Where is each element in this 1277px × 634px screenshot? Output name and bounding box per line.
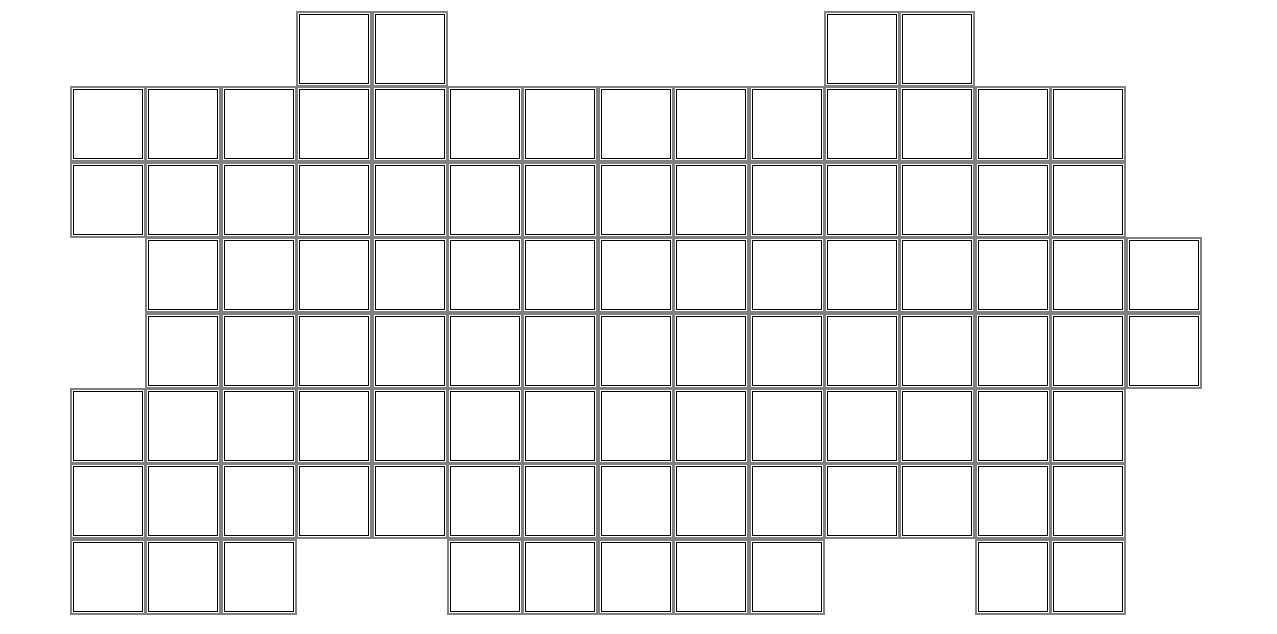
board-cell[interactable] xyxy=(525,542,595,612)
board-cell[interactable] xyxy=(676,316,746,386)
board-cell[interactable] xyxy=(752,316,822,386)
board-cell[interactable] xyxy=(299,391,369,461)
board-cell[interactable] xyxy=(978,240,1048,310)
board-cell[interactable] xyxy=(902,240,972,310)
board-cell[interactable] xyxy=(450,165,520,235)
board-cell[interactable] xyxy=(752,466,822,536)
board-cell[interactable] xyxy=(601,391,671,461)
board-cell[interactable] xyxy=(601,466,671,536)
board-cell[interactable] xyxy=(148,89,218,159)
board-cell[interactable] xyxy=(827,316,897,386)
board-cell[interactable] xyxy=(676,165,746,235)
board-cell[interactable] xyxy=(1053,391,1123,461)
board-cell[interactable] xyxy=(902,14,972,84)
board-cell[interactable] xyxy=(1053,542,1123,612)
board-cell[interactable] xyxy=(827,240,897,310)
board-cell[interactable] xyxy=(450,89,520,159)
board-cell[interactable] xyxy=(525,466,595,536)
board-cell[interactable] xyxy=(752,165,822,235)
board-cell[interactable] xyxy=(1129,316,1199,386)
board-cell[interactable] xyxy=(224,316,294,386)
board-cell[interactable] xyxy=(1053,316,1123,386)
board-cell[interactable] xyxy=(73,89,143,159)
board-cell[interactable] xyxy=(224,542,294,612)
board-cell[interactable] xyxy=(676,466,746,536)
board-cell[interactable] xyxy=(978,466,1048,536)
board-cell[interactable] xyxy=(299,466,369,536)
board-cell[interactable] xyxy=(73,466,143,536)
board-cell[interactable] xyxy=(148,165,218,235)
board-cell[interactable] xyxy=(148,391,218,461)
board-cell[interactable] xyxy=(902,466,972,536)
board-cell[interactable] xyxy=(601,240,671,310)
board-cell[interactable] xyxy=(978,89,1048,159)
board-cell[interactable] xyxy=(902,89,972,159)
board-cell[interactable] xyxy=(148,316,218,386)
board-cell[interactable] xyxy=(375,391,445,461)
board-cell[interactable] xyxy=(1053,89,1123,159)
board-cell[interactable] xyxy=(1053,240,1123,310)
board-cell[interactable] xyxy=(601,89,671,159)
board-cell[interactable] xyxy=(1053,466,1123,536)
board-cell[interactable] xyxy=(450,316,520,386)
board-cell[interactable] xyxy=(525,316,595,386)
board-cell[interactable] xyxy=(676,89,746,159)
board-cell[interactable] xyxy=(601,542,671,612)
board-cell[interactable] xyxy=(676,240,746,310)
board-cell[interactable] xyxy=(978,391,1048,461)
board-cell[interactable] xyxy=(676,391,746,461)
board-cell[interactable] xyxy=(450,542,520,612)
board-cell[interactable] xyxy=(224,391,294,461)
board-cell[interactable] xyxy=(676,542,746,612)
board-cell[interactable] xyxy=(1053,165,1123,235)
board-cell[interactable] xyxy=(978,316,1048,386)
board-cell[interactable] xyxy=(601,316,671,386)
board-cell[interactable] xyxy=(525,240,595,310)
board-cell[interactable] xyxy=(827,165,897,235)
board-cell[interactable] xyxy=(752,391,822,461)
board-cell[interactable] xyxy=(978,165,1048,235)
board-cell[interactable] xyxy=(299,89,369,159)
board-cell[interactable] xyxy=(375,316,445,386)
board-cell[interactable] xyxy=(148,240,218,310)
board-cell[interactable] xyxy=(299,316,369,386)
board-cell[interactable] xyxy=(375,14,445,84)
board-cell[interactable] xyxy=(450,240,520,310)
board-cell[interactable] xyxy=(902,165,972,235)
board-cell[interactable] xyxy=(224,165,294,235)
board-cell[interactable] xyxy=(902,391,972,461)
board-cell[interactable] xyxy=(73,391,143,461)
board-cell[interactable] xyxy=(375,89,445,159)
board-cell[interactable] xyxy=(299,14,369,84)
board-cell[interactable] xyxy=(73,542,143,612)
board-cell[interactable] xyxy=(525,89,595,159)
board-cell[interactable] xyxy=(525,165,595,235)
board-cell[interactable] xyxy=(1129,240,1199,310)
board-cell[interactable] xyxy=(148,466,218,536)
board-cell[interactable] xyxy=(450,466,520,536)
board-cell[interactable] xyxy=(752,89,822,159)
board-cell[interactable] xyxy=(375,466,445,536)
board-cell[interactable] xyxy=(148,542,218,612)
board-cell[interactable] xyxy=(752,240,822,310)
board-cell[interactable] xyxy=(827,14,897,84)
board-cell[interactable] xyxy=(73,165,143,235)
board-cell[interactable] xyxy=(224,89,294,159)
board-cell[interactable] xyxy=(299,240,369,310)
board-cell[interactable] xyxy=(827,391,897,461)
board-cell[interactable] xyxy=(601,165,671,235)
board-cell[interactable] xyxy=(525,391,595,461)
board-cell[interactable] xyxy=(375,165,445,235)
page: { "board": { "description": "empty irreg… xyxy=(0,0,1277,634)
board-cell[interactable] xyxy=(299,165,369,235)
board-cell[interactable] xyxy=(224,240,294,310)
board-cell[interactable] xyxy=(827,466,897,536)
board-cell[interactable] xyxy=(752,542,822,612)
board-cell[interactable] xyxy=(902,316,972,386)
board-cell[interactable] xyxy=(450,391,520,461)
board-cell[interactable] xyxy=(375,240,445,310)
board-cell[interactable] xyxy=(827,89,897,159)
board-cell[interactable] xyxy=(224,466,294,536)
game-board xyxy=(0,0,1277,634)
board-cell[interactable] xyxy=(978,542,1048,612)
